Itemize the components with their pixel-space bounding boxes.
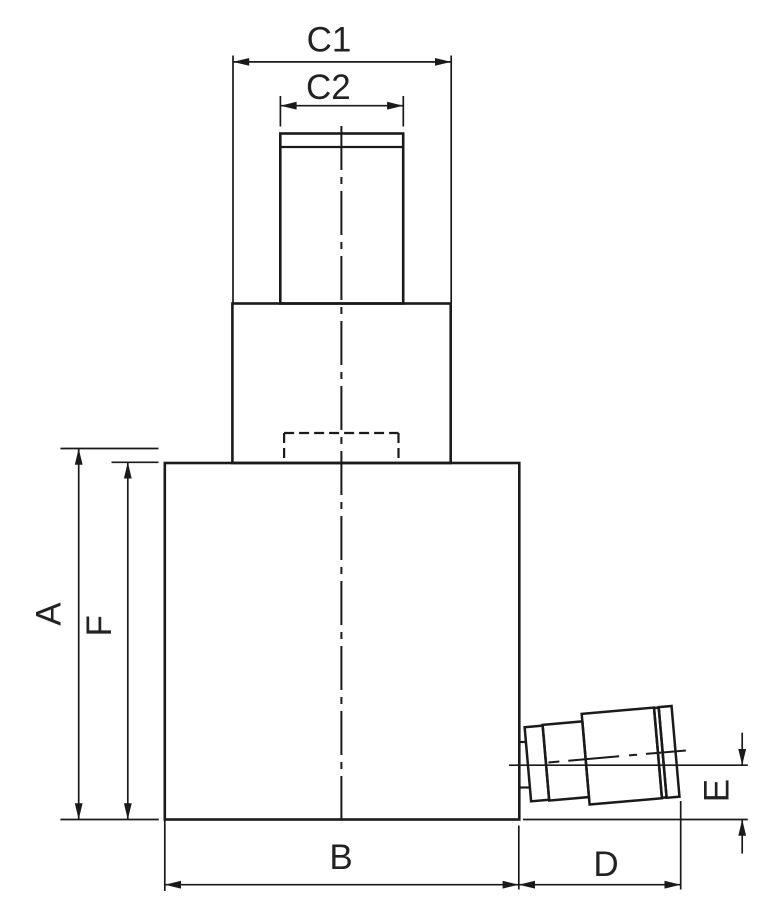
svg-text:B: B	[329, 838, 352, 877]
svg-text:D: D	[593, 845, 618, 884]
svg-text:F: F	[80, 615, 119, 636]
svg-text:A: A	[30, 602, 69, 626]
svg-text:C1: C1	[307, 21, 352, 60]
svg-text:E: E	[698, 779, 737, 802]
svg-text:C2: C2	[306, 68, 351, 107]
